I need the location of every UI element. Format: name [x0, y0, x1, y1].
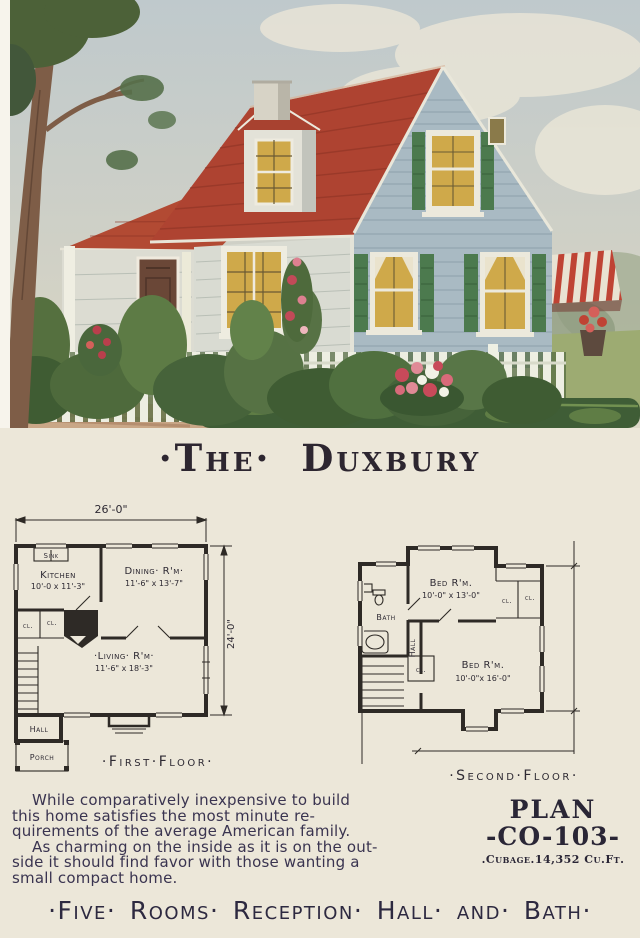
- page-footer: ·Five· Rooms· Reception· Hall· and· Bath…: [0, 896, 640, 925]
- hall-label: Hall: [30, 725, 49, 734]
- bed1-dim: 10'-0" x 13'-0": [422, 591, 480, 600]
- dining-dim: 11'-6" x 13'-7": [125, 579, 183, 588]
- first-floor-plan-svg: 26'-0" 24'-0": [6, 498, 242, 792]
- side-window-1: [354, 252, 434, 335]
- description-line: small compact home.: [12, 871, 480, 887]
- dining-label: Dining· R'm·: [125, 566, 184, 577]
- sink-label: Sink: [44, 552, 59, 560]
- house-illustration: [0, 0, 640, 428]
- chimney: [252, 82, 292, 120]
- closet3-label: cl.: [416, 666, 426, 674]
- catalog-page: ·The· Duxbury 26'-0" 24'-0": [0, 0, 640, 938]
- description-text: While comparatively inexpensive to build…: [12, 793, 480, 887]
- first-floor-plan: 26'-0" 24'-0": [6, 498, 242, 796]
- side-window-2: [464, 252, 546, 337]
- bed2-dim: 10'-0"x 16'-0": [455, 674, 510, 683]
- living-dim: 11'-6" x 18'-3": [95, 664, 153, 673]
- climbing-roses: [281, 258, 313, 343]
- house-illustration-svg: [10, 0, 640, 428]
- attic-window: [489, 118, 505, 144]
- closet1-label: cl.: [502, 597, 512, 605]
- page-title: ·The· Duxbury: [0, 436, 640, 480]
- porch-flowers: [78, 324, 122, 376]
- gable-window: [412, 130, 494, 217]
- porch-label: Porch: [30, 753, 55, 762]
- hall-label: Hall: [408, 638, 417, 657]
- closet2-label: cl.: [47, 619, 57, 627]
- kitchen-dim: 10'-0 x 11'-3": [31, 582, 85, 591]
- plan-windows: [356, 544, 546, 733]
- plan-info: PLAN -CO-103- .Cubage.14,352 Cu.Ft.: [472, 797, 634, 866]
- kitchen-label: Kitchen: [40, 570, 76, 581]
- plan-number: -CO-103-: [472, 823, 634, 850]
- bath-label: Bath: [376, 613, 395, 622]
- plan-heading: PLAN: [472, 797, 634, 823]
- second-floor-plan: Bed R'm. 10'-0" x 13'-0" cl. cl. Bath Ha…: [346, 526, 634, 794]
- plan-cubage: .Cubage.14,352 Cu.Ft.: [472, 853, 634, 866]
- closet2-label: cl.: [525, 594, 535, 602]
- first-floor-height-dim: 24'-0": [226, 619, 237, 649]
- bed2-label: Bed R'm.: [462, 660, 505, 671]
- second-floor-plan-svg: Bed R'm. 10'-0" x 13'-0" cl. cl. Bath Ha…: [346, 526, 634, 790]
- bed1-label: Bed R'm.: [430, 578, 473, 589]
- first-floor-caption: ·First·Floor·: [102, 754, 214, 770]
- second-floor-caption: ·Second·Floor·: [449, 768, 579, 784]
- closet1-label: cl.: [23, 622, 33, 630]
- living-label: ·Living· R'm·: [94, 651, 154, 662]
- first-floor-width-dim: 26'-0": [94, 503, 127, 516]
